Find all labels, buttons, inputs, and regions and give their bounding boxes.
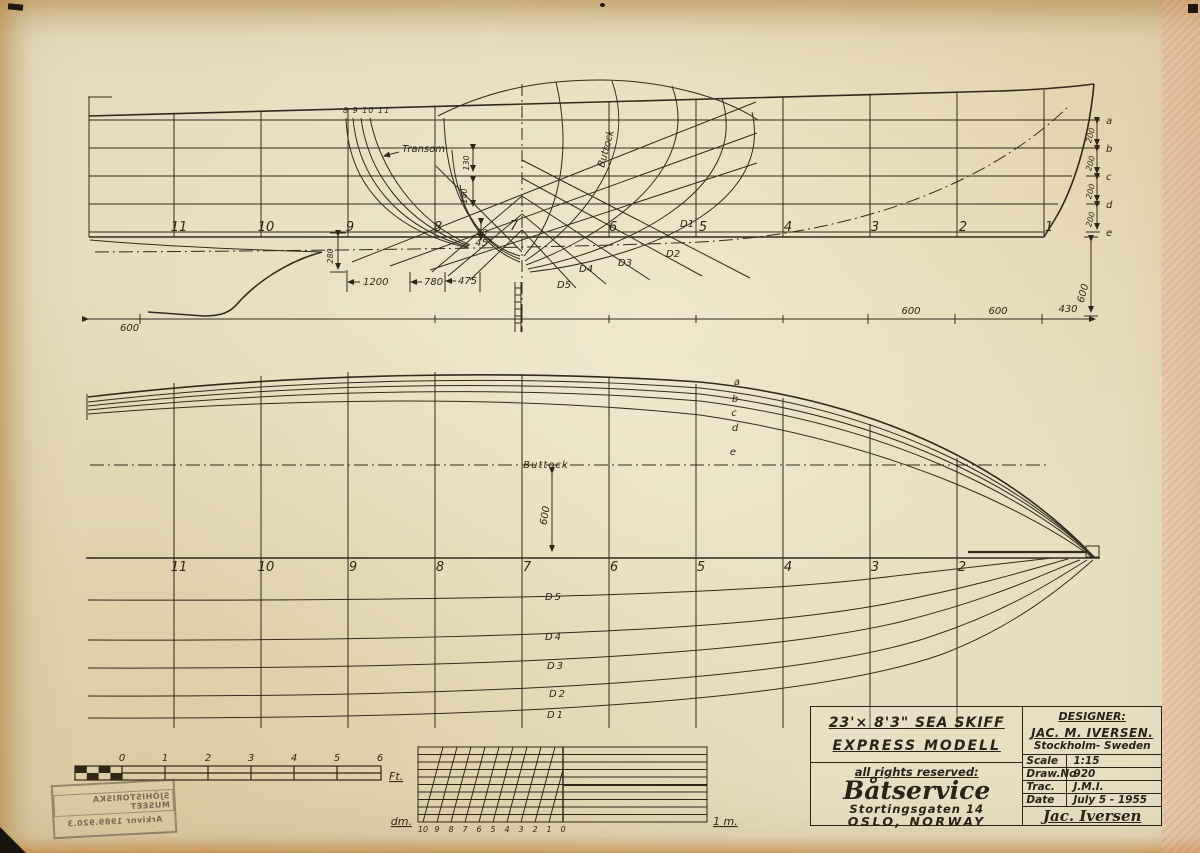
scale-tick-label: 8 [448, 825, 453, 834]
station-label: 2 [958, 560, 966, 575]
station-label: 11 [171, 560, 188, 575]
scale-tick-label: 10 [418, 825, 428, 834]
dim-label: 780 [424, 277, 443, 288]
designer-signature: Jac. Iversen [1023, 807, 1161, 825]
station-label: 8 [434, 220, 442, 235]
body-plan-overlay [352, 80, 758, 332]
museum-stamp: SJÖHISTORISKA MUSEET Arkivnr 1989.920.3 [51, 779, 178, 839]
scale-tick-label: 2 [532, 825, 537, 834]
waterline-letter: d [732, 423, 739, 434]
plan-labels: 11 10 9 8 7 6 5 4 3 2 a b c d e Buttock … [171, 377, 966, 721]
drawno-label: Draw.No [1023, 768, 1067, 780]
station-label: 10 [258, 220, 275, 235]
station-label: 8 [436, 560, 444, 575]
station-label: 3 [871, 560, 879, 575]
waterline-letter: e [1106, 228, 1112, 239]
scale-tick-label: 4 [504, 825, 509, 834]
waterline-letter: a [1106, 116, 1112, 127]
plan-station-lines [174, 372, 957, 728]
waterline-letter: a [734, 377, 740, 388]
diagonal-label: D3 [547, 661, 565, 672]
drawing-subtitle: EXPRESS MODELL [833, 738, 1001, 754]
dim-label: 600 [901, 306, 920, 317]
scale-tick-label: 3 [248, 753, 254, 764]
diagonal-curves [88, 558, 1093, 718]
station-label: 5 [699, 220, 707, 235]
station-label: 6 [609, 220, 617, 235]
dm-unit-label: dm. [391, 815, 412, 828]
dim-label: 1200 [363, 277, 388, 288]
scale-value: 1:15 [1067, 755, 1099, 767]
dim-label: 200 [1084, 127, 1097, 144]
title-block: 23'× 8'3" SEA SKIFF EXPRESS MODELL all r… [810, 706, 1162, 826]
buttock-label: Buttock [523, 460, 569, 471]
diagonal-label: D1 [680, 219, 694, 230]
designer-city: Stockholm- Sweden [1023, 740, 1161, 755]
drawing-sheet: 11 10 9 8 7 6 5 4 3 2 1 8 9 10 11 Transo… [0, 0, 1200, 853]
designer-name: JAC. M. IVERSEN. [1023, 726, 1161, 740]
station-label: 7 [523, 560, 532, 575]
dim-label: 430 [1058, 304, 1077, 315]
scale-tick-label: 6 [377, 753, 383, 764]
station-grid-lines [174, 90, 1044, 237]
scale-tick-label: 0 [119, 753, 125, 764]
station-label: 4 [784, 560, 792, 575]
drawno-row: Draw.No 920 [1023, 768, 1161, 781]
station-label: 6 [610, 560, 618, 575]
dim-label: 600 [1076, 283, 1092, 304]
drawing-title: 23'× 8'3" SEA SKIFF [829, 715, 1005, 731]
date-label: Date [1023, 794, 1067, 806]
diagonal-label: D2 [666, 249, 680, 260]
scale-tick-label: 3 [518, 825, 523, 834]
dim-label: 280 [326, 248, 335, 263]
dim-label: 600 [120, 323, 139, 334]
scale-tick-label: 4 [291, 753, 297, 764]
station-label: 9 [346, 220, 354, 235]
dim-label: 200 [1084, 183, 1097, 200]
date-value: July 5 - 1955 [1067, 794, 1147, 806]
skeg-profile [148, 252, 322, 316]
waterline-letter: b [732, 394, 738, 405]
diagonal-label: D4 [545, 632, 563, 643]
feet-scale-bar: 0 1 2 3 4 5 6 Ft. [75, 753, 403, 783]
station-label: 2 [959, 220, 967, 235]
sheer-line [89, 84, 1094, 116]
scale-label: Scale [1023, 755, 1067, 767]
scale-tick-label: 2 [205, 753, 211, 764]
diagonal-label: D5 [557, 280, 571, 291]
profile-grid [88, 97, 1092, 237]
station-label: 5 [697, 560, 705, 575]
scale-tick-label: 1 [546, 825, 551, 834]
meter-unit-label: 1 m. [713, 815, 738, 828]
dim-label: 475 [458, 276, 477, 287]
waterline-letter: c [731, 408, 737, 419]
dim-label: 50 [477, 228, 487, 237]
feet-unit-label: Ft. [389, 770, 403, 783]
scale-tick-label: 1 [162, 753, 168, 764]
station-label: 10 [258, 560, 275, 575]
station-label: 4 [784, 220, 792, 235]
station-label: 11 [171, 220, 188, 235]
drawno-value: 920 [1067, 768, 1095, 780]
divider [811, 762, 1022, 763]
station-label: 9 [349, 560, 357, 575]
diagonal-label: D3 [618, 258, 632, 269]
angle-label: 45° [475, 238, 493, 249]
scale-tick-label: 6 [476, 825, 481, 834]
waterline-letter: d [1106, 200, 1113, 211]
station-label: 7 [510, 219, 519, 234]
scale-tick-label: 0 [560, 825, 565, 834]
stamp-museum-name: SJÖHISTORISKA MUSEET [53, 789, 174, 817]
chine-dashdot [95, 105, 1070, 252]
dim-label: 600 [988, 306, 1007, 317]
scale-tick-label: 9 [434, 825, 439, 834]
scale-tick-label: 5 [334, 753, 340, 764]
firm-city: OSLO, NORWAY [848, 815, 986, 829]
dim-label: 140 [460, 188, 469, 203]
checker-cells [75, 766, 122, 780]
scale-tick-label: 7 [462, 825, 468, 834]
transom-label: Transom [402, 144, 445, 155]
date-row: Date July 5 - 1955 [1023, 794, 1161, 807]
waterline-letter: c [1106, 172, 1112, 183]
transom-fan [346, 118, 470, 248]
dim-label: 200 [1084, 155, 1097, 172]
dim-label: 200 [1084, 211, 1097, 228]
stamp-archive-number: Arkivnr 1989.920.3 [67, 814, 163, 828]
dim-label: 130 [462, 155, 471, 170]
waterline-letter: b [1106, 144, 1112, 155]
station-label: 1 [1045, 220, 1053, 235]
diagonal-label: D4 [579, 264, 593, 275]
scale-row: Scale 1:15 [1023, 755, 1161, 768]
designer-label: DESIGNER: [1023, 710, 1161, 723]
dim-label: 600 [538, 505, 552, 526]
station-label: 3 [871, 220, 879, 235]
diagonal-label: D5 [545, 592, 563, 603]
profile-dimensions [88, 120, 1100, 324]
metric-scale-labels: 10 9 8 7 6 5 4 3 2 1 0 dm. 1 m. [391, 815, 738, 834]
title-block-left: 23'× 8'3" SEA SKIFF EXPRESS MODELL all r… [811, 707, 1023, 825]
firm-name: Båtservice [843, 779, 990, 803]
tracer-value: J.M.I. [1067, 781, 1103, 793]
diagonal-label: D2 [549, 689, 567, 700]
tracer-label: Trac. [1023, 781, 1067, 793]
keel-bar-ladder [515, 282, 521, 332]
waterline-letter: e [730, 447, 736, 458]
half-breadth-view: 11 10 9 8 7 6 5 4 3 2 a b c d e Buttock … [86, 372, 1100, 728]
scale-tick-label: 5 [490, 825, 495, 834]
metric-scale-grid: 10 9 8 7 6 5 4 3 2 1 0 dm. 1 m. [391, 747, 738, 834]
tracer-row: Trac. J.M.I. [1023, 781, 1161, 794]
transom-station-numbers: 8 9 10 11 [343, 106, 390, 115]
diagonal-label: D1 [547, 710, 565, 721]
profile-view: 11 10 9 8 7 6 5 4 3 2 1 8 9 10 11 Transo… [88, 80, 1113, 334]
waterline-curves [87, 380, 1094, 557]
title-block-right: DESIGNER: JAC. M. IVERSEN. Stockholm- Sw… [1023, 707, 1161, 825]
